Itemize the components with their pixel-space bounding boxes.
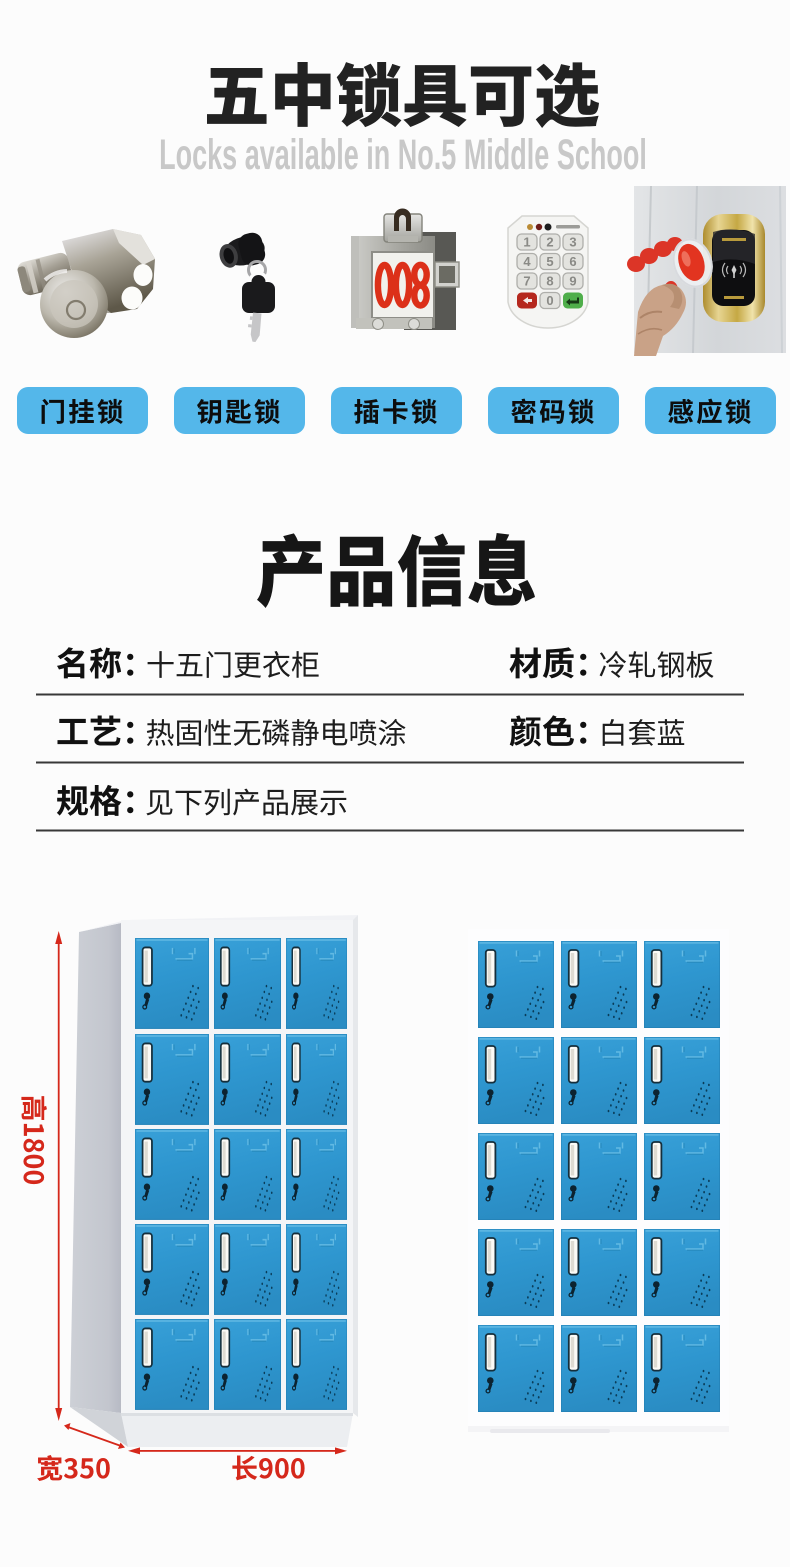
svg-text:9: 9 [569, 274, 576, 289]
svg-text:4: 4 [523, 254, 531, 269]
svg-text:2: 2 [546, 235, 553, 250]
svg-text:8: 8 [546, 274, 553, 289]
svg-text:6: 6 [569, 254, 576, 269]
svg-text:5: 5 [546, 254, 553, 269]
svg-text:3: 3 [569, 235, 576, 250]
svg-text:7: 7 [523, 274, 530, 289]
svg-text:1: 1 [523, 235, 530, 250]
svg-text:0: 0 [546, 293, 553, 308]
